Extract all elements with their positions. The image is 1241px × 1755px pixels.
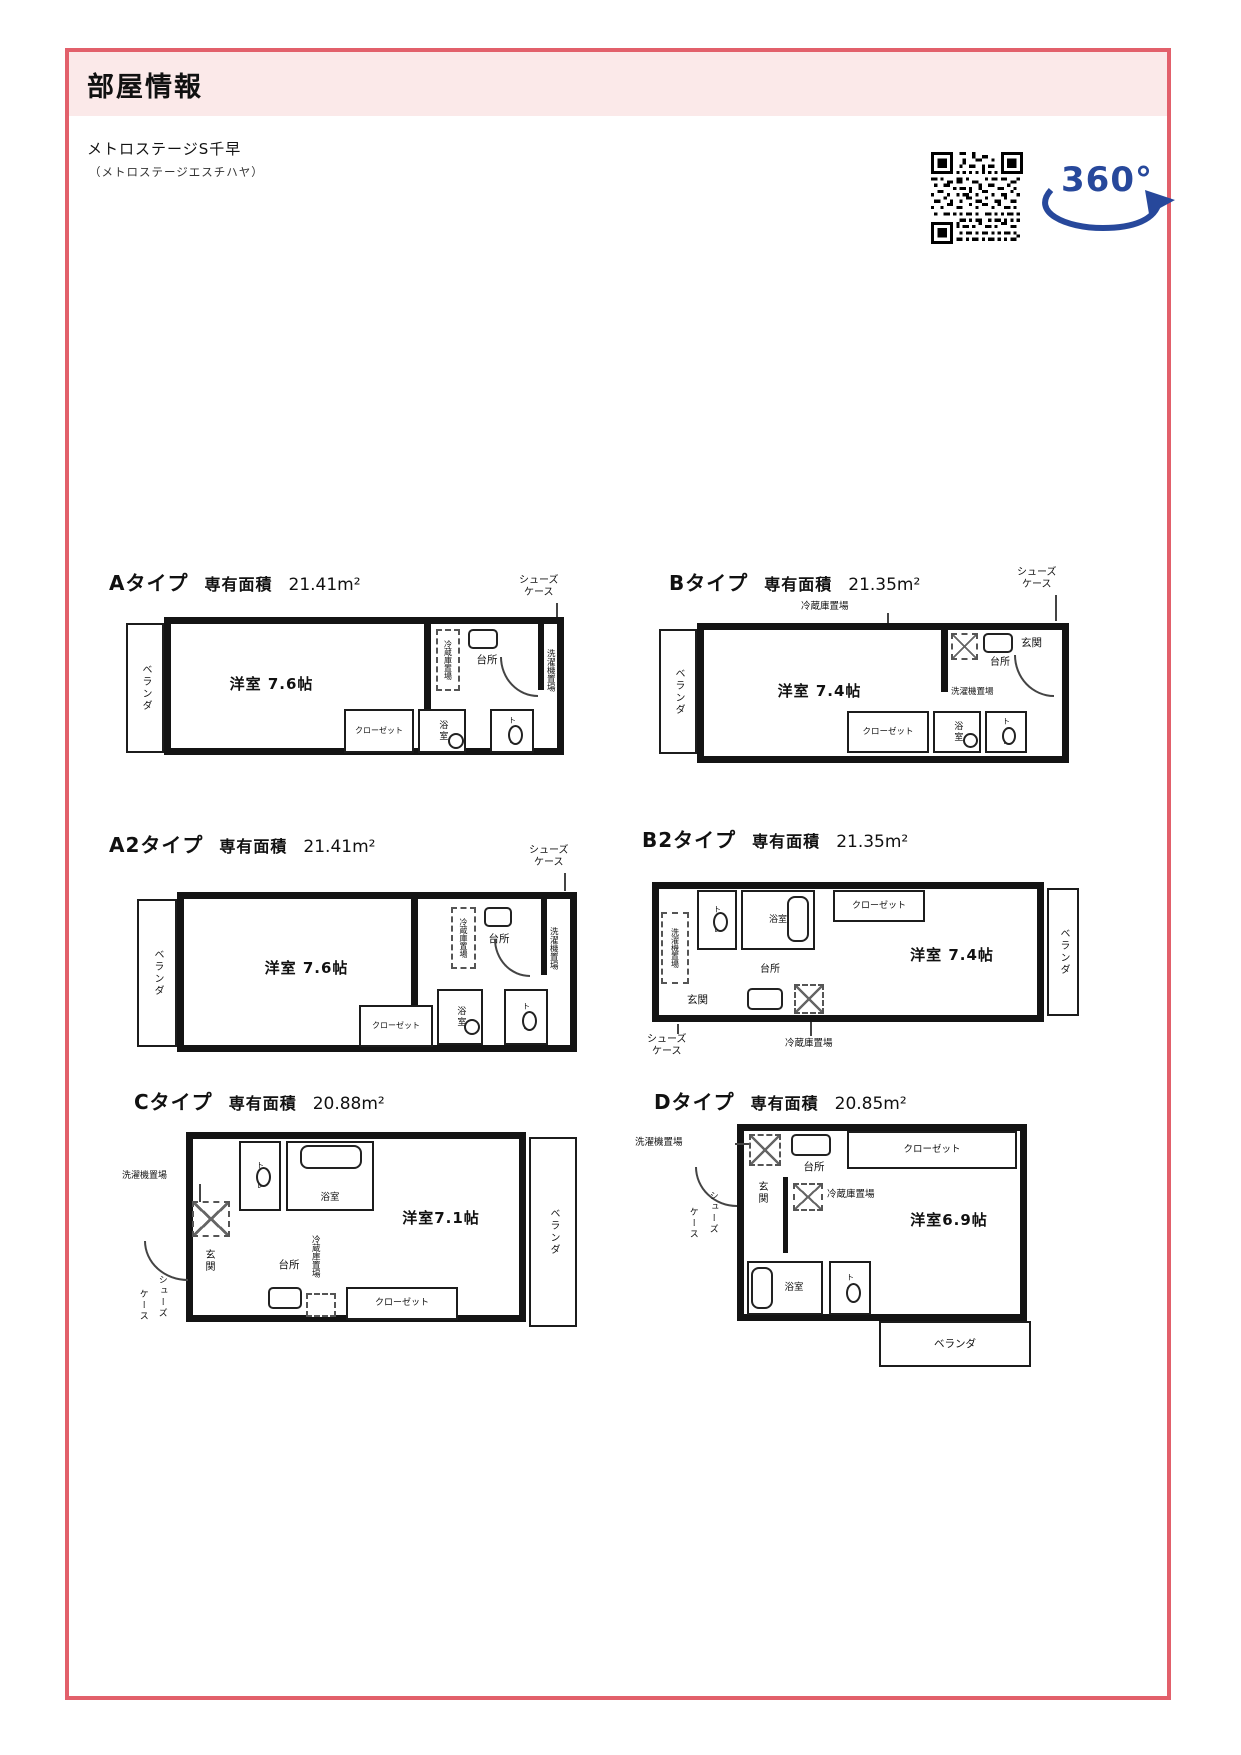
bath-drain-icon: [448, 733, 464, 749]
pointer-line: [677, 1024, 679, 1034]
pointer-line: [556, 603, 558, 617]
wall: [541, 899, 547, 975]
fridge-space-box: [794, 984, 824, 1014]
wall: [538, 624, 544, 690]
qr-code-icon: [931, 152, 1023, 244]
toilet-icon: [846, 1283, 861, 1303]
pointer-line: [1055, 595, 1057, 621]
floorplan-b2: B2タイプ 専有面積 21.35m² 洗濯機置場 トイレ 浴室 クローゼット 洋…: [589, 816, 1084, 1076]
property-name: メトロステージS千早: [87, 138, 241, 159]
plan-a-type: Aタイプ: [109, 567, 188, 596]
plan-a-title: Aタイプ 専有面積 21.41m²: [109, 567, 361, 596]
pointer-line: [810, 1022, 812, 1036]
plan-c-shoes-1: シューズ: [156, 1275, 167, 1339]
plan-a2-area-label: 専有面積: [219, 833, 287, 857]
plan-b-veranda: ベランダ: [659, 629, 697, 754]
page-header: 部屋情報: [69, 52, 1167, 116]
plan-a2-main-room: 洋室 7.6帖: [234, 959, 379, 977]
plan-d-fridge: 冷蔵庫置場: [827, 1189, 923, 1200]
plan-b-closet: クローゼット: [847, 711, 929, 753]
kitchen-sink-icon: [747, 988, 783, 1010]
plan-a2-area-value: 21.41m²: [303, 837, 375, 857]
plan-b-main-room: 洋室 7.4帖: [752, 682, 887, 700]
plan-c-kitchen: 台所: [266, 1259, 312, 1272]
plan-a-shoes-label: シューズ ケース: [519, 575, 559, 599]
plan-a-main-room: 洋室 7.6帖: [199, 675, 344, 693]
plan-a-veranda: ベランダ: [126, 623, 164, 753]
plan-d-kitchen: 台所: [791, 1161, 837, 1174]
plan-c-area-value: 20.88m²: [313, 1094, 385, 1114]
plan-b2-veranda: ベランダ: [1047, 888, 1079, 1016]
plan-b-entrance: 玄関: [1021, 637, 1063, 650]
plan-c-area-label: 専有面積: [229, 1090, 297, 1114]
bathtub-icon: [787, 896, 809, 942]
property-name-kana: （メトロステージエスチハヤ）: [89, 164, 264, 180]
floorplan-c: Cタイプ 専有面積 20.88m² ベランダ トイレ 浴室 洗濯機置場 玄関 台…: [104, 1079, 594, 1359]
bathtub-icon: [751, 1267, 773, 1309]
plan-a2-shoes-label: シューズ ケース: [529, 845, 569, 869]
bath-drain-icon: [464, 1019, 480, 1035]
plan-b-fridge: 冷蔵庫置場: [801, 601, 849, 612]
plan-d-type: Dタイプ: [654, 1086, 735, 1115]
plan-b2-shoes-label: シューズ ケース: [647, 1034, 687, 1058]
plan-d-title: Dタイプ 専有面積 20.85m²: [654, 1086, 907, 1115]
pointer-line: [199, 1184, 201, 1202]
plan-a2-title: A2タイプ 専有面積 21.41m²: [109, 829, 375, 858]
laundry-space-box: [192, 1201, 230, 1237]
plan-a2-fridge: 冷蔵庫置場: [451, 907, 476, 969]
plan-c-closet: クローゼット: [346, 1287, 458, 1320]
plan-b2-fridge: 冷蔵庫置場: [785, 1038, 881, 1049]
floorplan-b: Bタイプ 専有面積 21.35m² 冷蔵庫置場 シューズ ケース ベランダ 洋室…: [589, 557, 1084, 792]
plan-b2-main-room: 洋室 7.4帖: [887, 946, 1017, 964]
wall: [783, 1177, 788, 1253]
plan-a2-bath: 浴室: [437, 989, 483, 1045]
plan-a2-veranda: ベランダ: [137, 899, 177, 1047]
plan-b2-kitchen: 台所: [749, 964, 791, 976]
badge-360[interactable]: 360°: [1035, 158, 1175, 242]
page-title: 部屋情報: [87, 65, 203, 104]
fridge-space-box: [306, 1293, 336, 1317]
plan-b2-laundry: 洗濯機置場: [661, 912, 689, 984]
laundry-space-box: [749, 1134, 781, 1166]
plan-b-area-value: 21.35m²: [848, 575, 920, 595]
plan-d-shoes-1: シューズ: [707, 1191, 718, 1257]
toilet-icon: [1002, 727, 1016, 745]
floorplan-a: Aタイプ 専有面積 21.41m² シューズ ケース ベランダ 洋室 7.6帖 …: [104, 557, 594, 792]
fridge-space-box: [793, 1183, 823, 1211]
plan-a2-laundry: 洗濯機置場: [548, 927, 558, 1019]
bathtub-icon: [300, 1145, 362, 1169]
plan-a2-type: A2タイプ: [109, 829, 203, 858]
toilet-icon: [256, 1167, 271, 1187]
plan-a-area-label: 専有面積: [204, 571, 272, 595]
plan-b2-entrance: 玄関: [687, 994, 727, 1007]
plan-b-area-label: 専有面積: [764, 571, 832, 595]
floorplan-d: Dタイプ 専有面積 20.85m² 洗濯機置場 台所 クローゼット 玄関 シュー…: [579, 1079, 1069, 1399]
pointer-line: [564, 873, 566, 891]
plan-d-area-label: 専有面積: [751, 1090, 819, 1114]
plan-a-fridge: 冷蔵庫置場: [436, 629, 460, 691]
plan-b-laundry: 洗濯機置場: [951, 687, 1063, 697]
plan-b2-title: B2タイプ 専有面積 21.35m²: [642, 824, 908, 853]
plan-c-laundry: 洗濯機置場: [122, 1171, 234, 1182]
plan-d-laundry: 洗濯機置場: [635, 1137, 737, 1148]
toilet-icon: [522, 1011, 537, 1031]
plan-d-main-room: 洋室6.9帖: [879, 1211, 1019, 1229]
plan-c-type: Cタイプ: [134, 1086, 213, 1115]
plan-b-shoes-label: シューズ ケース: [1017, 567, 1057, 591]
plan-c-title: Cタイプ 専有面積 20.88m²: [134, 1086, 385, 1115]
plan-c-main-room: 洋室7.1帖: [376, 1209, 506, 1227]
kitchen-sink-icon: [468, 629, 498, 649]
plan-b2-area-label: 専有面積: [752, 828, 820, 852]
plan-a-laundry: 洗濯機置場: [545, 649, 555, 739]
kitchen-sink-icon: [983, 633, 1013, 653]
plan-d-closet: クローゼット: [847, 1131, 1017, 1169]
plan-c-shoes-2: ケース: [137, 1289, 148, 1341]
kitchen-sink-icon: [268, 1287, 302, 1309]
pointer-line: [735, 1143, 749, 1145]
plan-a-area-value: 21.41m²: [289, 575, 361, 595]
wall: [941, 630, 948, 692]
fridge-space-box: [951, 633, 978, 660]
rotate-arrow-icon: [1035, 184, 1175, 232]
floorplan-a2: A2タイプ 専有面積 21.41m² シューズ ケース ベランダ 洋室 7.6帖…: [104, 817, 594, 1067]
plan-b2-type: B2タイプ: [642, 824, 736, 853]
plan-d-veranda: ベランダ: [879, 1321, 1031, 1367]
plan-a2-closet: クローゼット: [359, 1005, 433, 1047]
kitchen-sink-icon: [484, 907, 512, 927]
plan-d-entrance: 玄関: [755, 1181, 767, 1251]
room-info-page: 部屋情報 メトロステージS千早 （メトロステージエスチハヤ） 360° Aタイプ…: [65, 48, 1171, 1700]
toilet-icon: [713, 912, 728, 932]
plan-d-area-value: 20.85m²: [835, 1094, 907, 1114]
toilet-icon: [508, 725, 523, 745]
plan-b2-area-value: 21.35m²: [836, 832, 908, 852]
plan-d-shoes-2: ケース: [687, 1207, 698, 1259]
plan-c-entrance: 玄関: [202, 1249, 214, 1313]
kitchen-sink-icon: [791, 1134, 831, 1156]
plan-b-type: Bタイプ: [669, 567, 748, 596]
plan-b-title: Bタイプ 専有面積 21.35m²: [669, 567, 920, 596]
plan-c-veranda: ベランダ: [529, 1137, 577, 1327]
plan-b2-closet: クローゼット: [833, 890, 925, 922]
bath-drain-icon: [963, 733, 978, 748]
plan-a-closet: クローゼット: [344, 709, 414, 753]
